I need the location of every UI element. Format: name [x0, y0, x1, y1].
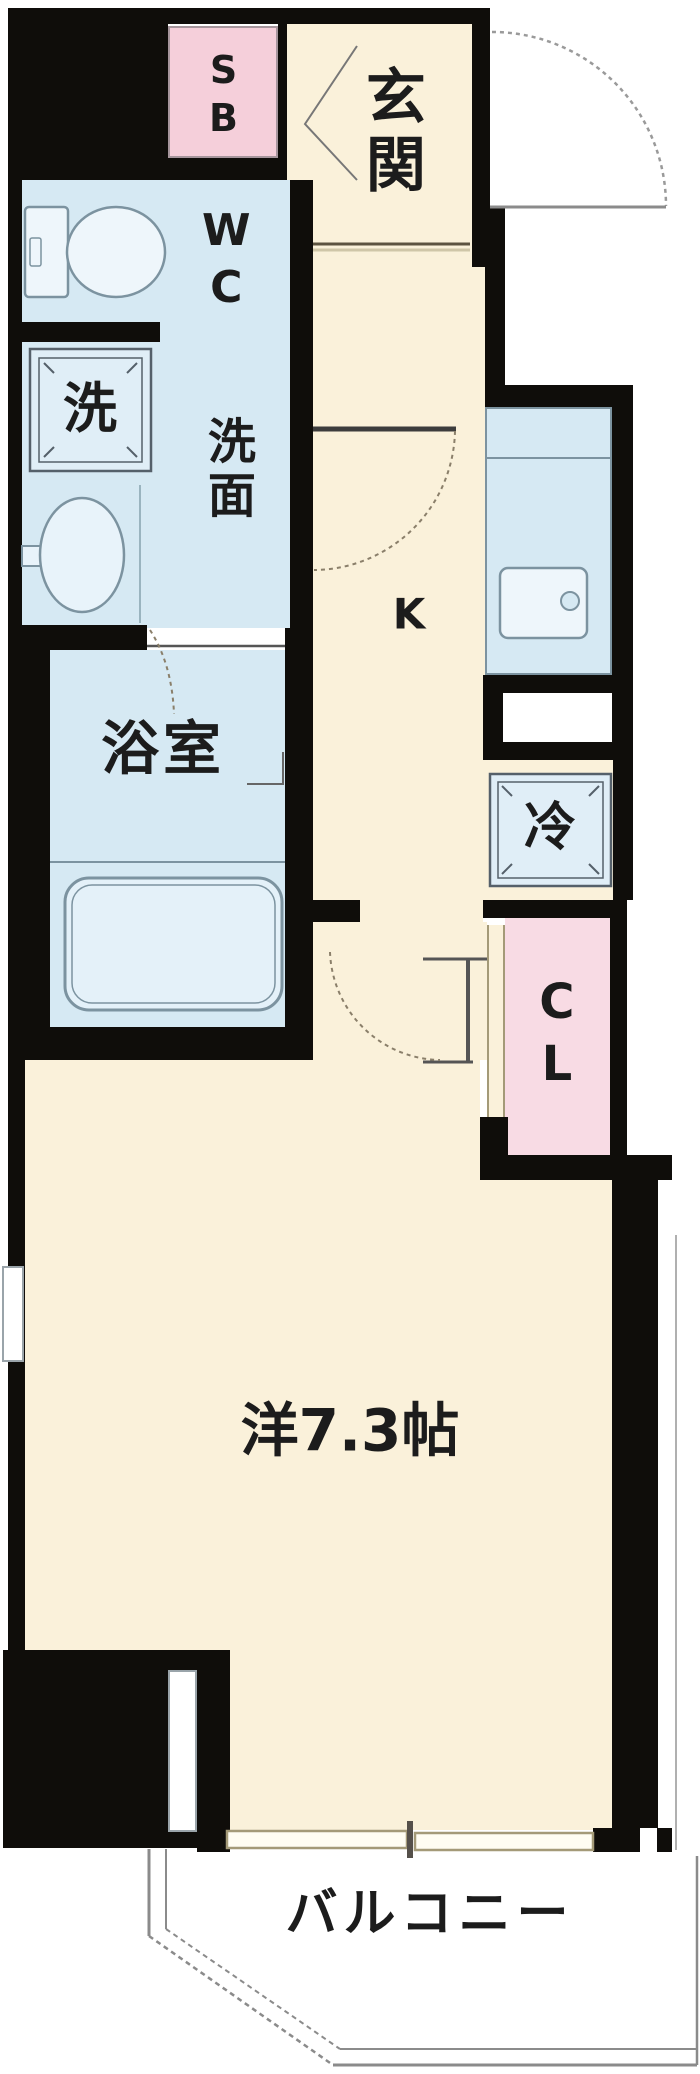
balcony-label: バルコニー	[286, 1886, 575, 1942]
bathroom-door-jamb	[247, 752, 283, 784]
toilet-label: WC	[202, 205, 250, 319]
balcony-sliding-window	[227, 1821, 593, 1858]
closet-label: CL	[530, 974, 582, 1098]
washroom-door-arc	[314, 431, 455, 570]
washbasin	[22, 498, 124, 612]
kitchen-faucet	[561, 592, 579, 610]
entrance-label: 玄関	[358, 65, 423, 201]
bathroom-door-arc	[150, 630, 174, 714]
kitchen-counter-detail	[486, 408, 611, 674]
shoe-box-label: SB	[202, 48, 243, 144]
main-door-arc	[330, 952, 440, 1060]
kitchen-label: K	[393, 591, 426, 636]
bathroom-label: 浴室	[101, 718, 225, 781]
toilet-fixture	[25, 207, 165, 297]
washroom-label: 洗面	[200, 416, 252, 524]
sash-center-stile	[407, 1821, 413, 1858]
washer-label: 洗	[63, 380, 117, 438]
balcony-outline	[149, 1849, 697, 2065]
floor-plan: SB 玄関 WC 洗 洗面 浴室 K 冷 CL 洋7.3帖 バルコニー	[0, 0, 700, 2074]
linework-layer	[0, 0, 700, 2074]
shoebox-door-lines	[305, 46, 357, 180]
entrance-door-arc	[492, 32, 666, 206]
main-room-label: 洋7.3帖	[241, 1400, 460, 1463]
refrigerator-label: 冷	[524, 800, 576, 856]
bathtub	[65, 878, 282, 1010]
